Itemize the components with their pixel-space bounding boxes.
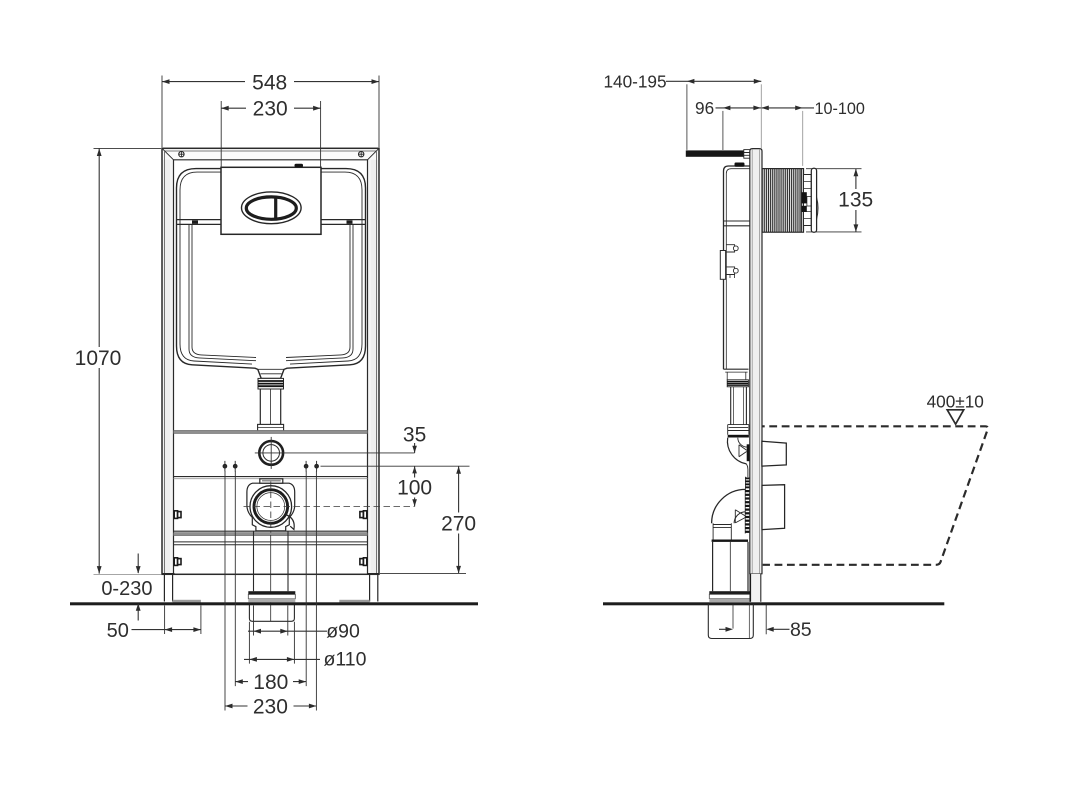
- svg-text:10-100: 10-100: [814, 100, 864, 118]
- svg-text:135: 135: [838, 189, 873, 212]
- svg-text:96: 96: [695, 98, 714, 118]
- svg-text:100: 100: [397, 477, 432, 500]
- svg-text:0-230: 0-230: [101, 578, 152, 600]
- svg-text:85: 85: [790, 619, 812, 641]
- svg-text:548: 548: [252, 71, 287, 94]
- svg-text:1070: 1070: [75, 347, 122, 370]
- svg-text:230: 230: [253, 98, 288, 121]
- svg-text:35: 35: [403, 424, 426, 447]
- svg-text:50: 50: [107, 620, 129, 642]
- svg-text:230: 230: [253, 695, 288, 718]
- svg-text:140-195: 140-195: [603, 72, 666, 92]
- svg-text:400±10: 400±10: [927, 391, 984, 411]
- svg-text:270: 270: [441, 512, 476, 535]
- svg-text:180: 180: [253, 671, 288, 694]
- svg-text:ø110: ø110: [324, 649, 367, 671]
- svg-text:ø90: ø90: [326, 620, 360, 642]
